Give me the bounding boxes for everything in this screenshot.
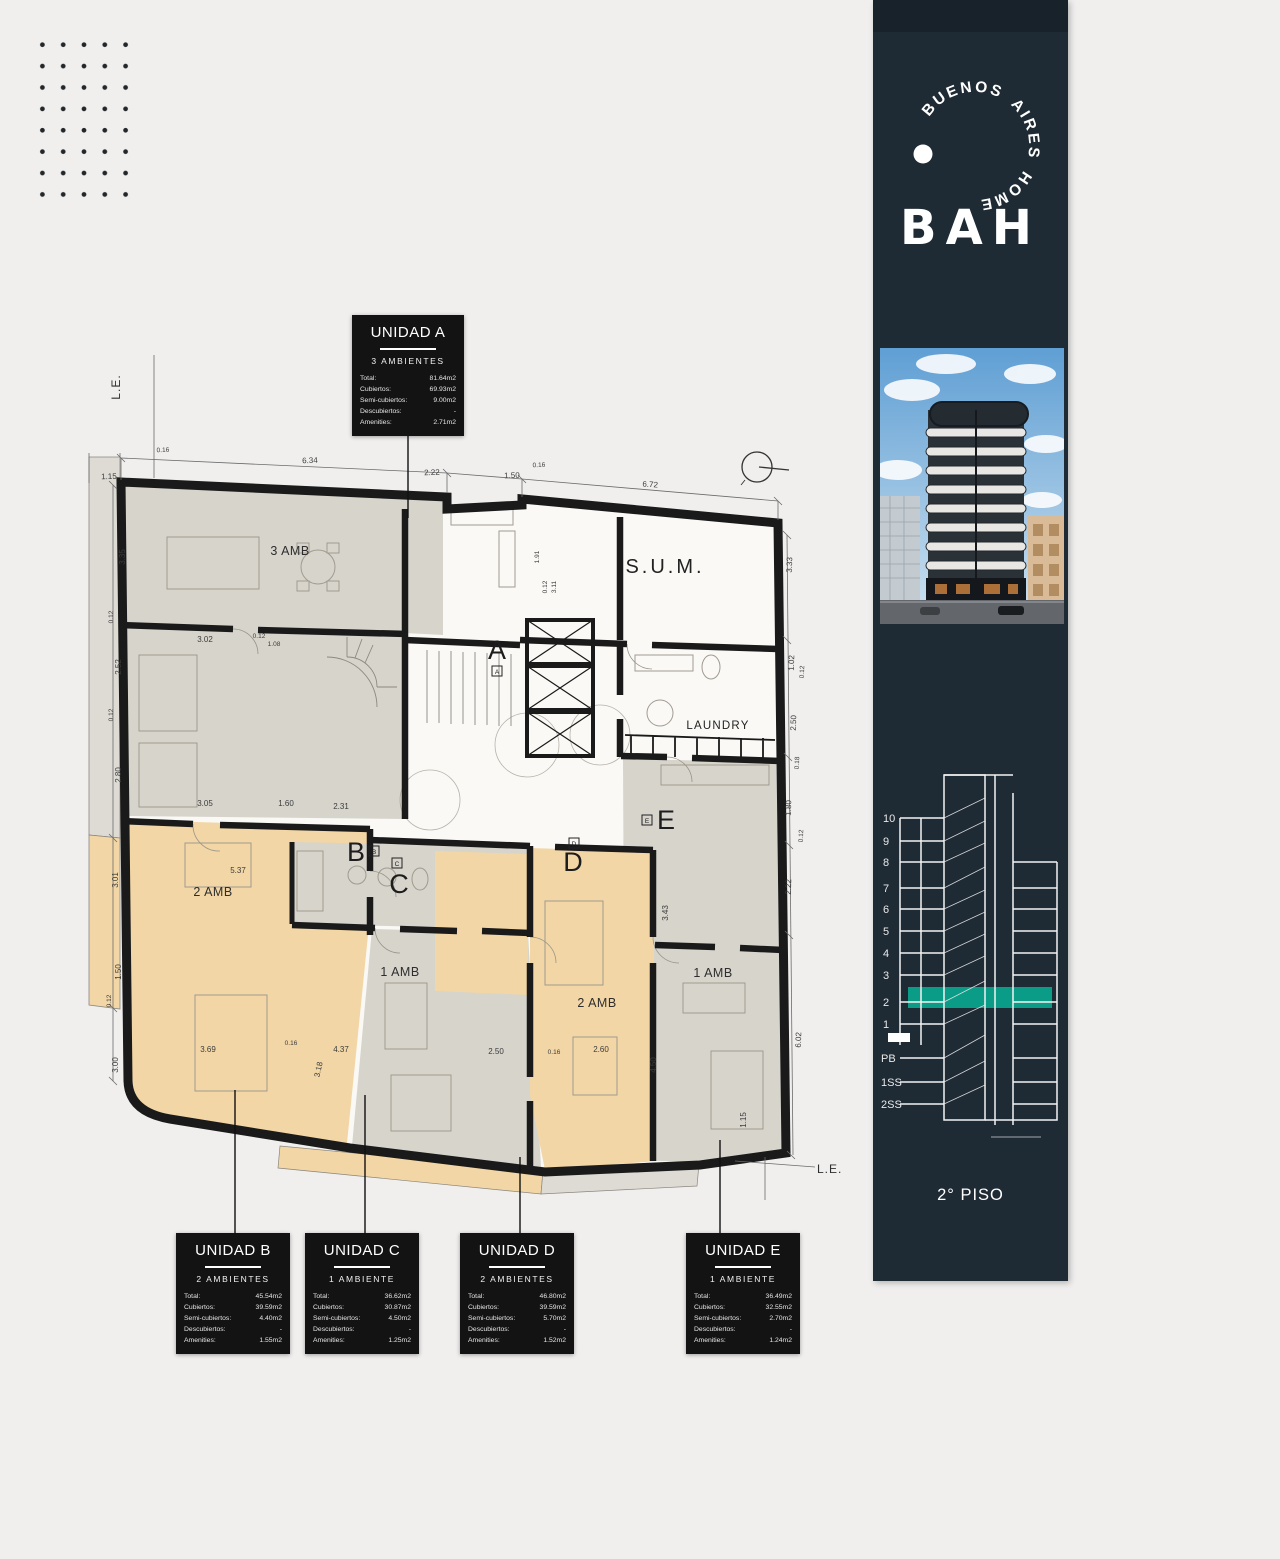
dim-inner-16: 0.16 [548, 1049, 561, 1056]
unit-c-row-semicubiertos: Semi-cubiertos:4.50m2 [313, 1314, 411, 1325]
divider [334, 1266, 390, 1268]
building-render-photo [880, 348, 1064, 624]
floor-label-1ss: 1SS [881, 1077, 902, 1089]
unit-c-row-amenities: Amenities:1.25m2 [313, 1336, 411, 1347]
floor-label-2ss: 2SS [881, 1099, 902, 1111]
svg-text:E: E [645, 818, 650, 825]
unit-d-row-semicubiertos: Semi-cubiertos:5.70m2 [468, 1314, 566, 1325]
section-structure [900, 775, 1057, 1125]
bah-circular-logo: BUENOS AIRES HOME [873, 24, 1068, 224]
floor-label-4: 4 [883, 948, 889, 960]
unit-c-subtitle: 1 AMBIENTE [313, 1274, 411, 1284]
section-floor-labels: 10 9 8 7 6 5 4 3 2 1 PB 1SS 2SS [881, 813, 902, 1111]
unit-info-box-b: UNIDAD B 2 AMBIENTES Total:45.54m2 Cubie… [176, 1233, 290, 1354]
dim-right-9: 1.15 [739, 1112, 748, 1128]
floor-label-3: 3 [883, 970, 889, 982]
logo-circle-text: BUENOS AIRES HOME [919, 78, 1043, 213]
dim-inner-4: 0.12 [542, 580, 549, 593]
unit-c-row-cubiertos: Cubiertos:30.87m2 [313, 1303, 411, 1314]
unit-c-title: UNIDAD C [313, 1242, 411, 1259]
unit-d-subtitle: 2 AMBIENTES [468, 1274, 566, 1284]
dim-left-6: 1.50 [114, 964, 123, 980]
room-label-sum: S.U.M. [625, 556, 704, 578]
floor-label-2: 2 [883, 997, 889, 1009]
unit-b-subtitle: 2 AMBIENTES [184, 1274, 282, 1284]
dim-right-0: 3.33 [785, 556, 795, 572]
unit-letter-d: D [563, 847, 583, 877]
dim-right-4: 0.18 [794, 756, 801, 769]
unit-e-row-total: Total:36.49m2 [694, 1292, 792, 1303]
brand-sidebar: BUENOS AIRES HOME BAH [873, 0, 1068, 1281]
room-label-laundry: LAUNDRY [686, 720, 749, 732]
floor-label-pb: PB [881, 1053, 896, 1065]
unit-b-row-total: Total:45.54m2 [184, 1292, 282, 1303]
unit-b-row-descubiertos: Descubiertos:- [184, 1325, 282, 1336]
dim-left-0: 3.35 [118, 549, 127, 565]
divider [380, 348, 436, 350]
unit-a-row-amenities: Amenities:2.71m2 [360, 418, 456, 429]
dim-right-1: 1.02 [787, 654, 797, 670]
unit-info-box-a: UNIDAD A 3 AMBIENTES Total:81.64m2 Cubie… [352, 315, 464, 436]
dim-right-6: 0.12 [798, 829, 805, 842]
unit-a-title: UNIDAD A [360, 324, 456, 341]
logo-dot-icon [914, 145, 933, 164]
dim-inner-17: 2.60 [593, 1045, 609, 1054]
svg-text:D: D [572, 841, 577, 848]
dim-inner-1: 0.12 [253, 633, 266, 640]
dim-left-5: 3.01 [111, 872, 120, 888]
dim-top-5: 6.72 [642, 479, 659, 489]
unit-e-title: UNIDAD E [694, 1242, 792, 1259]
unit-letter-e: E [657, 805, 675, 835]
unit-letter-b: B [347, 837, 365, 867]
unit-e-row-cubiertos: Cubiertos:32.55m2 [694, 1303, 792, 1314]
dim-inner-3: 1.91 [534, 550, 541, 563]
dim-inner-14: 4.37 [333, 1045, 349, 1054]
dim-left-2: 2.52 [114, 659, 123, 675]
dim-left-4: 2.80 [114, 767, 123, 783]
divider [489, 1266, 545, 1268]
room-label-3amb: 3 AMB [270, 544, 309, 558]
dim-top-2: 2.22 [424, 468, 440, 478]
floor-label-6: 6 [883, 904, 889, 916]
floor-label-7: 7 [883, 883, 889, 895]
unit-b-row-semicubiertos: Semi-cubiertos:4.40m2 [184, 1314, 282, 1325]
unit-d-title: UNIDAD D [468, 1242, 566, 1259]
dim-top-6: 1.15 [101, 472, 117, 482]
dim-left-7: 0.12 [106, 994, 113, 1007]
floor-caption: 2° PISO [873, 1186, 1068, 1205]
unit-d-row-cubiertos: Cubiertos:39.59m2 [468, 1303, 566, 1314]
brochure-page: 3 AMB S.U.M. LAUNDRY 2 AMB 1 AMB 2 AMB 1… [0, 0, 1280, 1559]
svg-text:A: A [495, 669, 500, 676]
unit-e-row-descubiertos: Descubiertos:- [694, 1325, 792, 1336]
dim-right-3: 2.50 [789, 714, 799, 730]
unit-d-row-total: Total:46.80m2 [468, 1292, 566, 1303]
unit-b-row-cubiertos: Cubiertos:39.59m2 [184, 1303, 282, 1314]
divider [715, 1266, 771, 1268]
dim-inner-15: 2.50 [488, 1047, 504, 1056]
dim-right-8: 6.02 [794, 1031, 804, 1047]
building-section-diagram: 10 9 8 7 6 5 4 3 2 1 PB 1SS 2SS [873, 765, 1068, 1160]
dim-top-3: 1.50 [504, 471, 520, 481]
le-label-bottom: L.E. [817, 1162, 842, 1176]
dim-left-1: 0.12 [108, 610, 115, 623]
unit-a-subtitle: 3 AMBIENTES [360, 356, 456, 366]
dim-left-3: 0.12 [108, 708, 115, 721]
unit-b-title: UNIDAD B [184, 1242, 282, 1259]
unit-c-row-descubiertos: Descubiertos:- [313, 1325, 411, 1336]
dim-inner-18: 4.50 [649, 1057, 658, 1073]
svg-text:BUENOS AIRES HOME: BUENOS AIRES HOME [919, 78, 1043, 213]
dim-inner-6: 3.05 [197, 799, 213, 808]
unit-a-row-total: Total:81.64m2 [360, 374, 456, 385]
unit-info-box-c: UNIDAD C 1 AMBIENTE Total:36.62m2 Cubier… [305, 1233, 419, 1354]
unit-info-box-d: UNIDAD D 2 AMBIENTES Total:46.80m2 Cubie… [460, 1233, 574, 1354]
unit-a-row-descubiertos: Descubiertos:- [360, 407, 456, 418]
floor-label-1: 1 [883, 1019, 889, 1031]
bah-wordmark: BAH [873, 200, 1068, 256]
unit-a-row-semicubiertos: Semi-cubiertos:9.00m2 [360, 396, 456, 407]
svg-text:B: B [372, 849, 376, 856]
unit-e-row-amenities: Amenities:1.24m2 [694, 1336, 792, 1347]
floor-label-10: 10 [883, 813, 895, 825]
dim-top-4: 0.16 [533, 462, 546, 469]
room-label-2amb-d: 2 AMB [577, 996, 616, 1010]
dim-right-7: 2.22 [784, 878, 794, 894]
main-tower [926, 402, 1028, 602]
dim-inner-9: 5.37 [230, 866, 246, 875]
room-label-1amb-e: 1 AMB [693, 966, 732, 980]
unit-letter-a: A [488, 635, 506, 665]
divider [205, 1266, 261, 1268]
dim-right-2: 0.12 [799, 665, 806, 678]
section-entry-block [888, 1033, 910, 1042]
unit-a-row-cubiertos: Cubiertos:69.93m2 [360, 385, 456, 396]
street [880, 600, 1064, 624]
dim-inner-0: 3.02 [197, 635, 213, 644]
dim-right-5: 1.80 [784, 799, 794, 815]
floor-plan: 3 AMB S.U.M. LAUNDRY 2 AMB 1 AMB 2 AMB 1… [75, 295, 845, 1360]
north-indicator-icon [741, 452, 789, 485]
unit-d-row-amenities: Amenities:1.52m2 [468, 1336, 566, 1347]
le-label-top: L.E. [109, 374, 123, 399]
room-label-1amb-c: 1 AMB [380, 965, 419, 979]
dim-inner-11: 3.69 [200, 1045, 216, 1054]
room-label-2amb-b: 2 AMB [193, 885, 232, 899]
unit-b-row-amenities: Amenities:1.55m2 [184, 1336, 282, 1347]
floor-label-5: 5 [883, 926, 889, 938]
dim-inner-2: 1.08 [268, 641, 281, 648]
unit-d-row-descubiertos: Descubiertos:- [468, 1325, 566, 1336]
floor-label-9: 9 [883, 836, 889, 848]
dim-inner-8: 2.31 [333, 802, 349, 811]
unit-e-row-semicubiertos: Semi-cubiertos:2.70m2 [694, 1314, 792, 1325]
dim-top-0: 0.16 [157, 447, 170, 454]
unit-e-subtitle: 1 AMBIENTE [694, 1274, 792, 1284]
unit-info-box-e: UNIDAD E 1 AMBIENTE Total:36.49m2 Cubier… [686, 1233, 800, 1354]
floor-2-highlight [908, 987, 1052, 1008]
svg-text:C: C [395, 861, 400, 868]
unit-letter-c: C [389, 869, 409, 899]
decorative-dot-grid [30, 32, 136, 202]
dim-inner-10: 3.43 [661, 905, 670, 921]
floor-label-8: 8 [883, 857, 889, 869]
dim-left-8: 3.00 [111, 1057, 120, 1073]
unit-c-row-total: Total:36.62m2 [313, 1292, 411, 1303]
dim-inner-7: 1.60 [278, 799, 294, 808]
dim-top-1: 6.34 [302, 456, 318, 466]
section-stairs [944, 798, 985, 1104]
dim-inner-5: 3.11 [551, 581, 558, 594]
dim-inner-12: 0.16 [285, 1040, 298, 1047]
